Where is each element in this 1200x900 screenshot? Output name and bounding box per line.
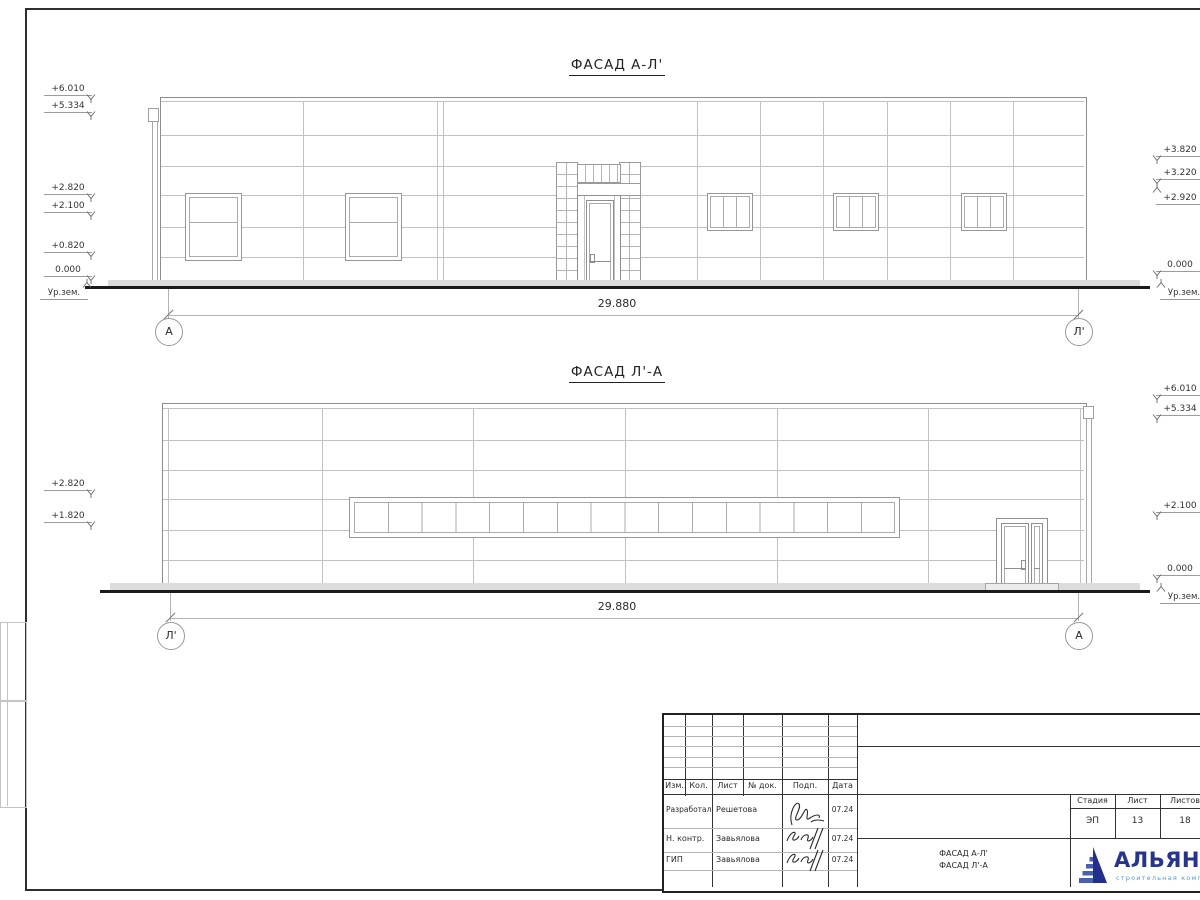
panel-joint bbox=[161, 135, 1084, 136]
ground-label: Ур.зем. bbox=[1160, 288, 1200, 300]
ribbon-window bbox=[833, 193, 879, 231]
axis-bubble: Л' bbox=[157, 622, 185, 650]
elevation-mark: +5.334 bbox=[1156, 404, 1200, 416]
elevation-value: +2.820 bbox=[44, 479, 92, 491]
margin-box bbox=[0, 622, 27, 702]
parapet-line bbox=[161, 101, 1084, 102]
door-leaf bbox=[586, 200, 614, 285]
elevation-value: +2.100 bbox=[1156, 501, 1200, 513]
doc-title-line: ФАСАД Л'-А bbox=[857, 861, 1070, 870]
stamp-date: 07.24 bbox=[828, 834, 857, 843]
dimension-value: 29.880 bbox=[565, 297, 669, 310]
stamp-header: Кол. bbox=[685, 781, 712, 790]
window-mullions bbox=[710, 196, 750, 228]
ribbon-window bbox=[707, 193, 753, 231]
elevation-mark: +3.220 bbox=[1156, 168, 1200, 180]
axis-bubble: А bbox=[155, 318, 183, 346]
stamp-line bbox=[664, 852, 857, 853]
level-arrow-icon bbox=[86, 251, 96, 260]
level-arrow-icon bbox=[86, 111, 96, 120]
stamp-date: 07.24 bbox=[828, 855, 857, 864]
company-logo-icon bbox=[1076, 843, 1110, 885]
ground-level-mark: Ур.зем. bbox=[1160, 288, 1200, 300]
elevation-value: +2.820 bbox=[44, 183, 92, 195]
door-handle bbox=[590, 254, 595, 263]
gutter-funnel bbox=[1083, 406, 1094, 419]
entrance-pilaster bbox=[556, 162, 578, 287]
ground-level-mark: Ур.зем. bbox=[40, 288, 88, 300]
stamp-line bbox=[1070, 808, 1200, 809]
panel-joint bbox=[887, 101, 888, 285]
rear-door-unit bbox=[996, 518, 1048, 591]
ribbon-window bbox=[961, 193, 1007, 231]
parapet-line bbox=[163, 408, 1084, 409]
window-frame bbox=[349, 197, 398, 257]
facade-bottom-building bbox=[162, 403, 1087, 592]
level-arrow-icon bbox=[1156, 279, 1166, 288]
sheet-label: Лист bbox=[1115, 796, 1160, 805]
level-arrow-icon bbox=[1152, 184, 1162, 193]
dimension-line bbox=[168, 315, 1079, 316]
window bbox=[185, 193, 242, 261]
elevation-value: +3.820 bbox=[1156, 145, 1200, 157]
stamp-header: Дата bbox=[828, 781, 857, 790]
panel-joint bbox=[163, 440, 1084, 441]
stamp-line bbox=[857, 746, 1200, 747]
panel-joint bbox=[163, 470, 1084, 471]
window-mullions bbox=[836, 196, 876, 228]
panel-joint bbox=[1080, 408, 1081, 589]
stamp-role: Н. контр. bbox=[666, 834, 712, 843]
elevation-mark: 0.000 bbox=[1156, 564, 1200, 576]
panel-joint bbox=[1013, 101, 1014, 285]
panel-joint bbox=[168, 408, 169, 589]
elevation-value: +2.100 bbox=[44, 201, 92, 213]
drawing-sheet: ФАСАД А-Л' bbox=[0, 0, 1200, 900]
elevation-value: 0.000 bbox=[1156, 260, 1200, 272]
elevation-mark: +0.820 bbox=[44, 241, 92, 253]
ground-level-mark: Ур.зем. bbox=[1160, 592, 1200, 604]
panel-joint bbox=[303, 101, 304, 285]
panel-joint bbox=[437, 101, 438, 285]
panel-joint bbox=[322, 408, 323, 589]
panel-joint bbox=[443, 101, 444, 285]
stamp-line bbox=[664, 794, 1200, 795]
stamp-name: Завьялова bbox=[716, 834, 780, 843]
level-arrow-icon bbox=[86, 489, 96, 498]
window-frame bbox=[189, 197, 238, 257]
axis-bubble: А bbox=[1065, 622, 1093, 650]
company-name: АЛЬЯНС bbox=[1114, 848, 1200, 872]
stamp-name: Решетова bbox=[716, 805, 780, 814]
window-mullions bbox=[354, 502, 895, 533]
elevation-value: 0.000 bbox=[1156, 564, 1200, 576]
company-tagline: строительная компания bbox=[1116, 874, 1200, 882]
title-block: Изм. Кол. Лист № док. Подп. Дата Разрабо… bbox=[662, 713, 1200, 893]
level-arrow-icon bbox=[1152, 414, 1162, 423]
gutter-funnel bbox=[148, 108, 159, 122]
margin-box-divider bbox=[7, 622, 8, 806]
stamp-header: Лист bbox=[712, 781, 743, 790]
level-arrow-icon bbox=[1156, 583, 1166, 592]
elevation-mark: +2.820 bbox=[44, 479, 92, 491]
panel-joint bbox=[928, 408, 929, 589]
elevation-mark: 0.000 bbox=[1156, 260, 1200, 272]
stamp-line bbox=[664, 736, 857, 737]
elevation-value: +2.920 bbox=[1156, 193, 1200, 205]
level-arrow-icon bbox=[86, 211, 96, 220]
level-arrow-icon bbox=[1152, 270, 1162, 279]
stamp-name: Завьялова bbox=[716, 855, 780, 864]
sheets-value: 18 bbox=[1160, 816, 1200, 826]
stamp-header: Подп. bbox=[782, 781, 828, 790]
dimension-line bbox=[170, 618, 1079, 619]
stamp-header: № док. bbox=[743, 781, 782, 790]
margin-box bbox=[0, 700, 27, 808]
elevation-value: +3.220 bbox=[1156, 168, 1200, 180]
elevation-mark: 0.000 bbox=[44, 265, 92, 277]
entrance-door-unit bbox=[577, 195, 621, 286]
stamp-line bbox=[857, 838, 1200, 839]
downpipe bbox=[1086, 412, 1092, 588]
ground-label: Ур.зем. bbox=[1160, 592, 1200, 604]
door-glazing bbox=[589, 203, 611, 282]
stage-label: Стадия bbox=[1070, 796, 1115, 805]
stamp-header: Изм. bbox=[664, 781, 685, 790]
stamp-line bbox=[664, 746, 857, 747]
frame-top bbox=[25, 8, 1200, 10]
door-frame-line bbox=[614, 196, 615, 285]
door-handle bbox=[1021, 560, 1026, 570]
stamp-line bbox=[664, 726, 857, 727]
elevation-mark: +1.820 bbox=[44, 511, 92, 523]
doc-title-line: ФАСАД А-Л' bbox=[857, 849, 1070, 858]
axis-bubble: Л' bbox=[1065, 318, 1093, 346]
level-arrow-icon bbox=[1152, 394, 1162, 403]
panel-joint bbox=[163, 560, 1084, 561]
facade-bottom-title: ФАСАД Л'-А bbox=[497, 364, 737, 380]
elevation-value: +6.010 bbox=[44, 84, 92, 96]
stage-value: ЭП bbox=[1070, 816, 1115, 826]
door-frame-line bbox=[584, 196, 585, 285]
stamp-role: Разработал bbox=[666, 805, 712, 814]
stamp-line bbox=[664, 779, 857, 780]
elevation-value: +6.010 bbox=[1156, 384, 1200, 396]
stamp-date: 07.24 bbox=[828, 805, 857, 814]
window-transom bbox=[189, 222, 238, 223]
sheet-value: 13 bbox=[1115, 816, 1160, 826]
panel-joint bbox=[697, 101, 698, 285]
window-transom bbox=[349, 222, 398, 223]
sheets-label: Листов bbox=[1160, 796, 1200, 805]
level-arrow-icon bbox=[1152, 155, 1162, 164]
panel-joint bbox=[760, 101, 761, 285]
door-sidelight bbox=[1031, 523, 1043, 587]
door-glazing bbox=[1004, 526, 1026, 584]
window-mullions bbox=[964, 196, 1004, 228]
stamp-line bbox=[712, 715, 713, 887]
window bbox=[345, 193, 402, 261]
elevation-mark: +3.820 bbox=[1156, 145, 1200, 157]
entrance-transom bbox=[577, 164, 621, 183]
level-arrow-icon bbox=[82, 279, 92, 288]
elevation-value: +5.334 bbox=[1156, 404, 1200, 416]
elevation-mark: +2.820 bbox=[44, 183, 92, 195]
sidelight-glazing bbox=[1034, 526, 1040, 584]
stamp-line bbox=[664, 757, 857, 758]
elevation-value: +0.820 bbox=[44, 241, 92, 253]
facade-top-building bbox=[160, 97, 1087, 288]
downpipe bbox=[152, 115, 158, 286]
ribbon-window-band bbox=[349, 497, 900, 538]
elevation-mark: +6.010 bbox=[1156, 384, 1200, 396]
ground-line bbox=[85, 286, 1150, 289]
panel-joint bbox=[950, 101, 951, 285]
facade-top-title: ФАСАД А-Л' bbox=[497, 57, 737, 73]
dimension-value: 29.880 bbox=[565, 600, 669, 613]
elevation-value: 0.000 bbox=[44, 265, 92, 277]
stamp-line bbox=[664, 767, 857, 768]
stamp-role: ГИП bbox=[666, 855, 712, 864]
ground-label: Ур.зем. bbox=[40, 288, 88, 300]
level-arrow-icon bbox=[1152, 574, 1162, 583]
elevation-mark: +2.100 bbox=[1156, 501, 1200, 513]
panel-joint bbox=[823, 101, 824, 285]
stamp-line bbox=[664, 828, 857, 829]
door-rail bbox=[1034, 568, 1040, 569]
level-arrow-icon bbox=[1152, 511, 1162, 520]
door-leaf bbox=[1001, 523, 1029, 587]
elevation-value: +1.820 bbox=[44, 511, 92, 523]
elevation-mark: +5.334 bbox=[44, 101, 92, 113]
elevation-mark: +2.920 bbox=[1156, 193, 1200, 205]
level-arrow-icon bbox=[86, 521, 96, 530]
entrance-pilaster bbox=[619, 162, 641, 287]
ground-line bbox=[100, 590, 1150, 593]
stamp-line bbox=[664, 870, 857, 871]
elevation-mark: +2.100 bbox=[44, 201, 92, 213]
elevation-mark: +6.010 bbox=[44, 84, 92, 96]
elevation-value: +5.334 bbox=[44, 101, 92, 113]
signature-icon bbox=[782, 847, 828, 873]
